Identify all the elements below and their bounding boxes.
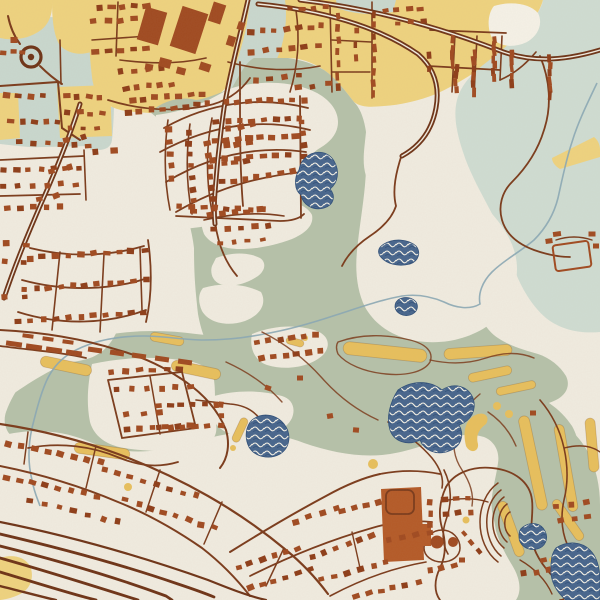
map-canvas [0,0,600,600]
map-poster [0,0,600,600]
paper-texture-overlay [0,0,600,600]
